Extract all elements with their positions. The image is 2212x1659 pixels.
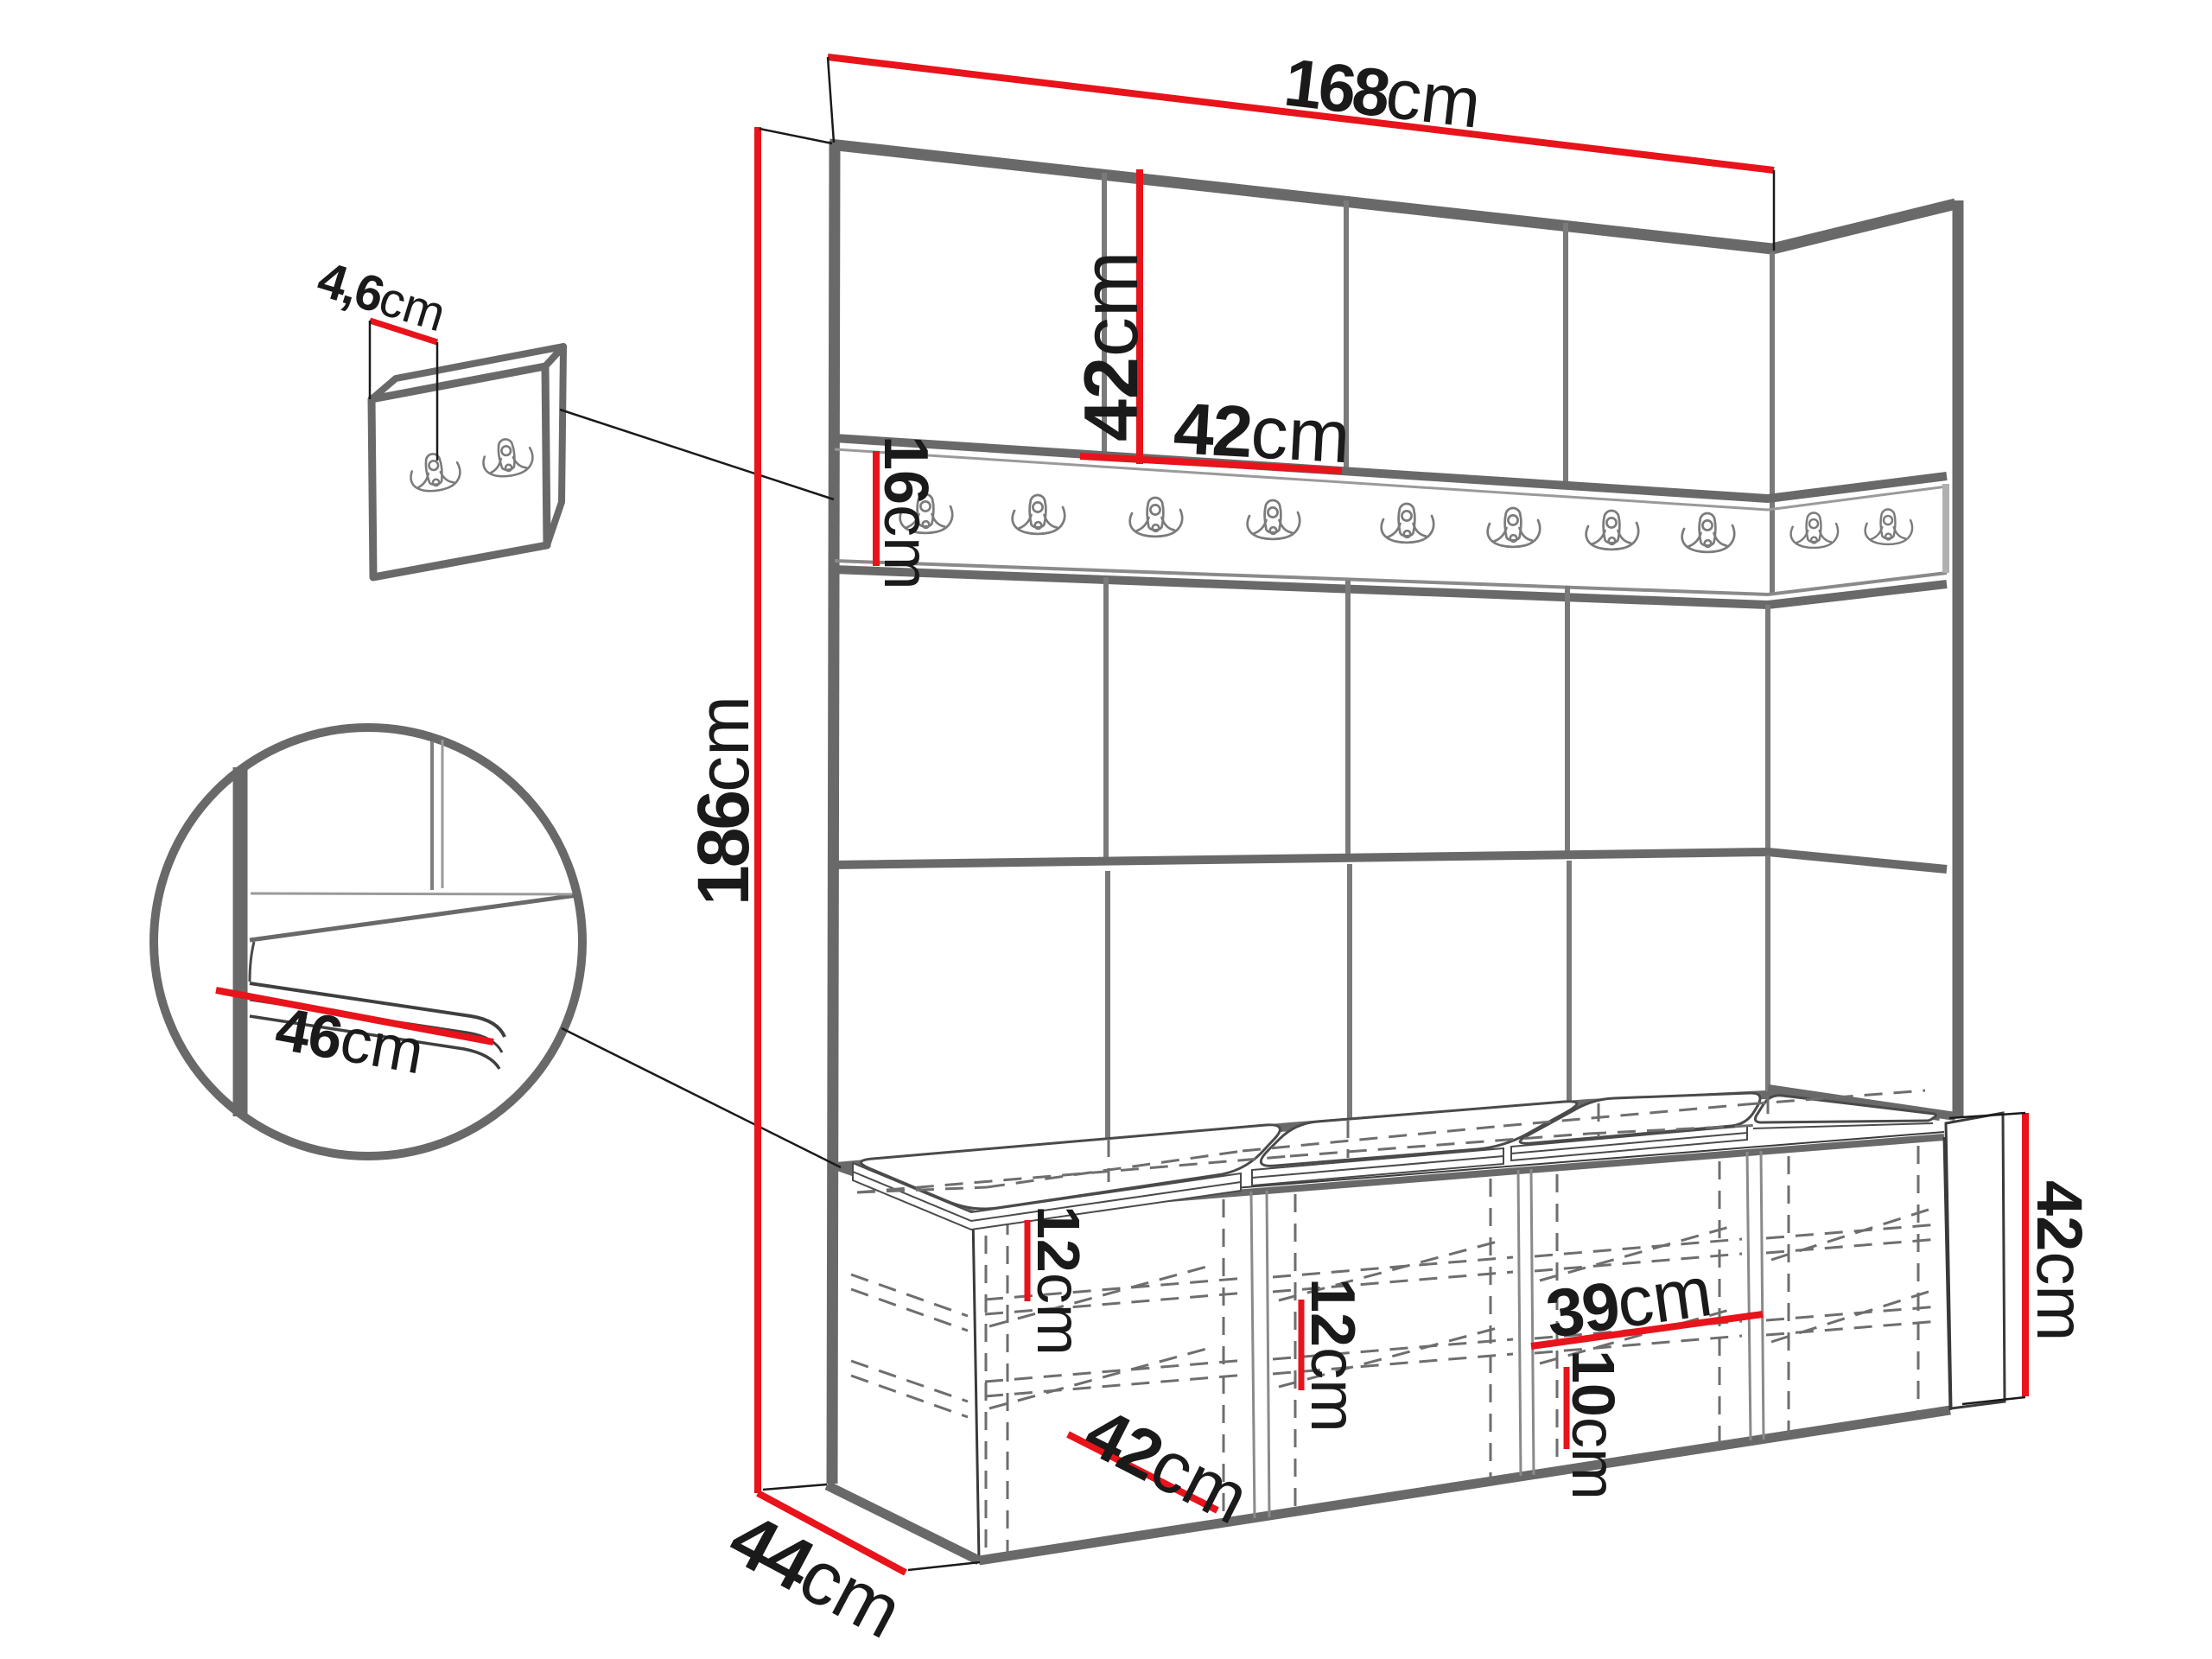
svg-text:42cm: 42cm xyxy=(1066,251,1154,442)
svg-text:42cm: 42cm xyxy=(1073,1389,1262,1539)
svg-text:168cm: 168cm xyxy=(1281,42,1485,143)
svg-text:186cm: 186cm xyxy=(683,696,764,906)
svg-text:16cm: 16cm xyxy=(871,435,943,590)
svg-text:4,6cm: 4,6cm xyxy=(311,251,452,342)
svg-text:10cm: 10cm xyxy=(1559,1350,1628,1500)
svg-text:12cm: 12cm xyxy=(1298,1278,1370,1433)
svg-text:42cm: 42cm xyxy=(1172,386,1352,479)
svg-text:42cm: 42cm xyxy=(2023,1180,2099,1341)
svg-text:12cm: 12cm xyxy=(1024,1205,1093,1356)
